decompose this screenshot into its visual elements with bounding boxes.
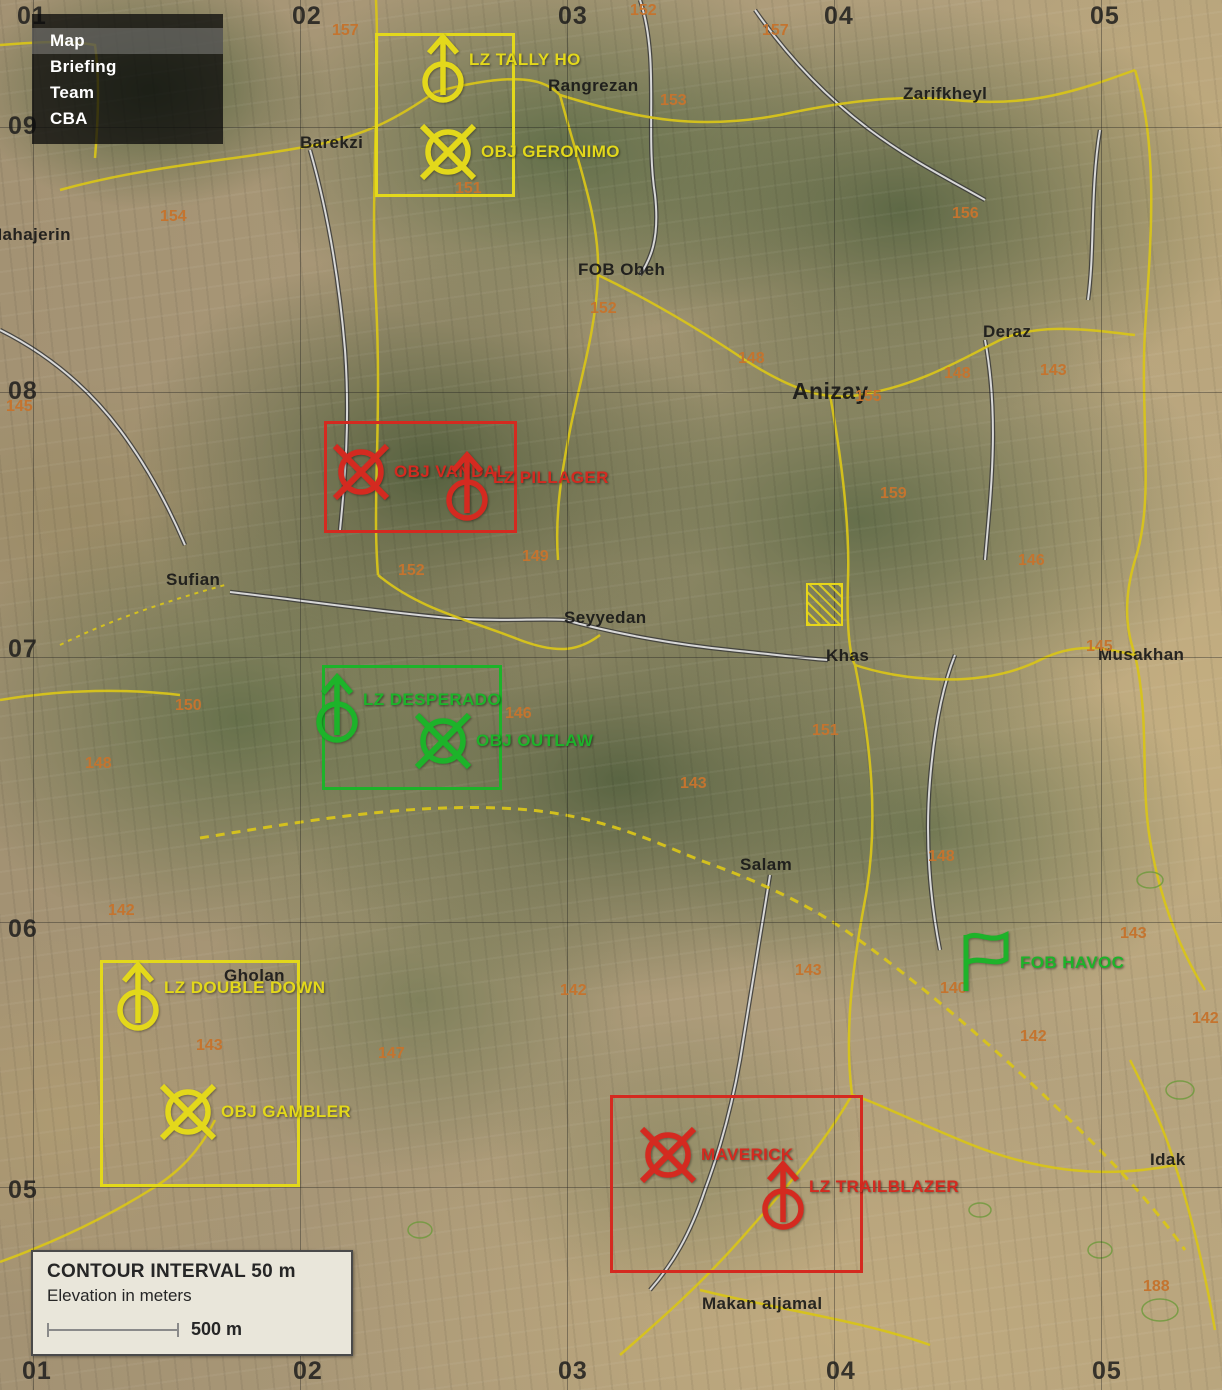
elevation-label: 153 — [660, 92, 687, 110]
place-label-deraz: Deraz — [983, 322, 1031, 342]
elevation-label: 155 — [855, 388, 882, 406]
place-label-zarifkheyl: Zarifkheyl — [903, 84, 987, 104]
elevation-label: 152 — [398, 562, 425, 580]
elevation-label: 151 — [812, 722, 839, 740]
marker-label: LZ DOUBLE DOWN — [164, 978, 325, 998]
elevation-label: 143 — [1040, 362, 1067, 380]
grid-line-horizontal — [0, 392, 1222, 393]
grid-label: 06 — [8, 915, 38, 944]
elevation-label: 148 — [944, 365, 971, 383]
lz-arrow-icon — [313, 670, 361, 746]
elevation-label: 152 — [630, 2, 657, 20]
menu-item-map[interactable]: Map — [32, 28, 223, 54]
objective-cross-icon — [417, 121, 479, 183]
scale-distance-label: 500 m — [191, 1319, 242, 1340]
scale-bar — [47, 1323, 179, 1337]
elevation-label: 142 — [560, 982, 587, 1000]
elevation-label: 152 — [590, 300, 617, 318]
elevation-label: 188 — [1143, 1278, 1170, 1296]
marker-label: LZ DESPERADO — [363, 690, 501, 710]
elevation-label: 157 — [762, 22, 789, 40]
place-label-seyyedan: Seyyedan — [564, 608, 647, 628]
place-label-sufian: Sufian — [166, 570, 220, 590]
place-label-fob-obeh: FOB Obeh — [578, 260, 665, 280]
elevation-label: 146 — [505, 705, 532, 723]
compound-area-marker[interactable] — [806, 583, 843, 626]
elevation-label: 146 — [1018, 552, 1045, 570]
grid-label: 07 — [8, 635, 38, 664]
marker-obj-gambler[interactable]: OBJ GAMBLER — [157, 1081, 219, 1143]
marker-lz-double-down[interactable]: LZ DOUBLE DOWN — [114, 958, 162, 1034]
marker-label: OBJ GERONIMO — [481, 142, 620, 162]
place-label-salam: Salam — [740, 855, 792, 875]
elevation-label: 143 — [795, 962, 822, 980]
marker-label: LZ PILLAGER — [493, 468, 609, 488]
elevation-label: 143 — [680, 775, 707, 793]
objective-cross-icon — [157, 1081, 219, 1143]
grid-label: 04 — [824, 2, 854, 31]
lz-arrow-icon — [114, 958, 162, 1034]
marker-obj-geronimo[interactable]: OBJ GERONIMO — [417, 121, 479, 183]
grid-label: 02 — [293, 1357, 323, 1386]
elevation-label: 142 — [1020, 1028, 1047, 1046]
menu-item-cba[interactable]: CBA — [32, 106, 223, 132]
elevation-label: 148 — [85, 755, 112, 773]
place-label-barekzi: Barekzi — [300, 133, 363, 153]
marker-maverick[interactable]: MAVERICK — [637, 1124, 699, 1186]
place-label-idak: Idak — [1150, 1150, 1186, 1170]
elevation-label: 145 — [6, 398, 33, 416]
objective-cross-icon — [412, 710, 474, 772]
elevation-label: 143 — [196, 1037, 223, 1055]
grid-label: 01 — [22, 1357, 52, 1386]
contour-interval-label: CONTOUR INTERVAL 50 m — [47, 1261, 337, 1283]
marker-label: LZ TALLY HO — [469, 50, 581, 70]
grid-label: 02 — [292, 2, 322, 31]
flag-icon — [956, 927, 1018, 993]
marker-fob-havoc[interactable]: FOB HAVOC — [956, 927, 1018, 993]
place-label-khas: Khas — [826, 646, 869, 666]
elevation-label: 145 — [1086, 638, 1113, 656]
lz-arrow-icon — [443, 448, 491, 524]
menu-item-team[interactable]: Team — [32, 80, 223, 106]
elevation-label: 156 — [952, 205, 979, 223]
elevation-label: 147 — [378, 1045, 405, 1063]
marker-label: FOB HAVOC — [1020, 953, 1124, 973]
lz-arrow-icon — [759, 1157, 807, 1233]
map-canvas[interactable]: 010203040501020304050908070605 Mahajerin… — [0, 0, 1222, 1390]
elevation-label: 148 — [928, 848, 955, 866]
marker-label: OBJ GAMBLER — [221, 1102, 351, 1122]
objective-cross-icon — [330, 441, 392, 503]
marker-lz-pillager[interactable]: LZ PILLAGER — [443, 448, 491, 524]
elevation-label: 143 — [1120, 925, 1147, 943]
map-legend: CONTOUR INTERVAL 50 m Elevation in meter… — [31, 1250, 353, 1356]
grid-line-horizontal — [0, 922, 1222, 923]
marker-lz-trailblazer[interactable]: LZ TRAILBLAZER — [759, 1157, 807, 1233]
grid-label: 05 — [1090, 2, 1120, 31]
grid-label: 03 — [558, 1357, 588, 1386]
elevation-label: 150 — [175, 697, 202, 715]
menu-item-briefing[interactable]: Briefing — [32, 54, 223, 80]
elevation-label: 157 — [332, 22, 359, 40]
grid-line-vertical — [300, 0, 301, 1390]
elevation-label: 149 — [522, 548, 549, 566]
elevation-label: 154 — [160, 208, 187, 226]
marker-label: LZ TRAILBLAZER — [809, 1177, 959, 1197]
main-menu: MapBriefingTeamCBA — [32, 14, 223, 144]
elevation-label: 142 — [1192, 1010, 1219, 1028]
elevation-label: 142 — [108, 902, 135, 920]
marker-obj-outlaw[interactable]: OBJ OUTLAW — [412, 710, 474, 772]
marker-lz-desperado[interactable]: LZ DESPERADO — [313, 670, 361, 746]
elevation-units-label: Elevation in meters — [47, 1286, 337, 1306]
grid-label: 03 — [558, 2, 588, 31]
marker-label: OBJ OUTLAW — [476, 731, 593, 751]
elevation-label: 159 — [880, 485, 907, 503]
grid-label: 05 — [1092, 1357, 1122, 1386]
objective-cross-icon — [637, 1124, 699, 1186]
grid-label: 05 — [8, 1176, 38, 1205]
marker-lz-tally-ho[interactable]: LZ TALLY HO — [419, 30, 467, 106]
place-label-mahajerin: Mahajerin — [0, 225, 71, 245]
place-label-makan-aljamal: Makan aljamal — [702, 1294, 822, 1314]
grid-line-vertical — [1101, 0, 1102, 1390]
grid-line-horizontal — [0, 657, 1222, 658]
elevation-label: 148 — [738, 350, 765, 368]
grid-label: 04 — [826, 1357, 856, 1386]
place-label-rangrezan: Rangrezan — [548, 76, 639, 96]
grid-line-vertical — [567, 0, 568, 1390]
lz-arrow-icon — [419, 30, 467, 106]
marker-obj-vandal[interactable]: OBJ VANDAL — [330, 441, 392, 503]
